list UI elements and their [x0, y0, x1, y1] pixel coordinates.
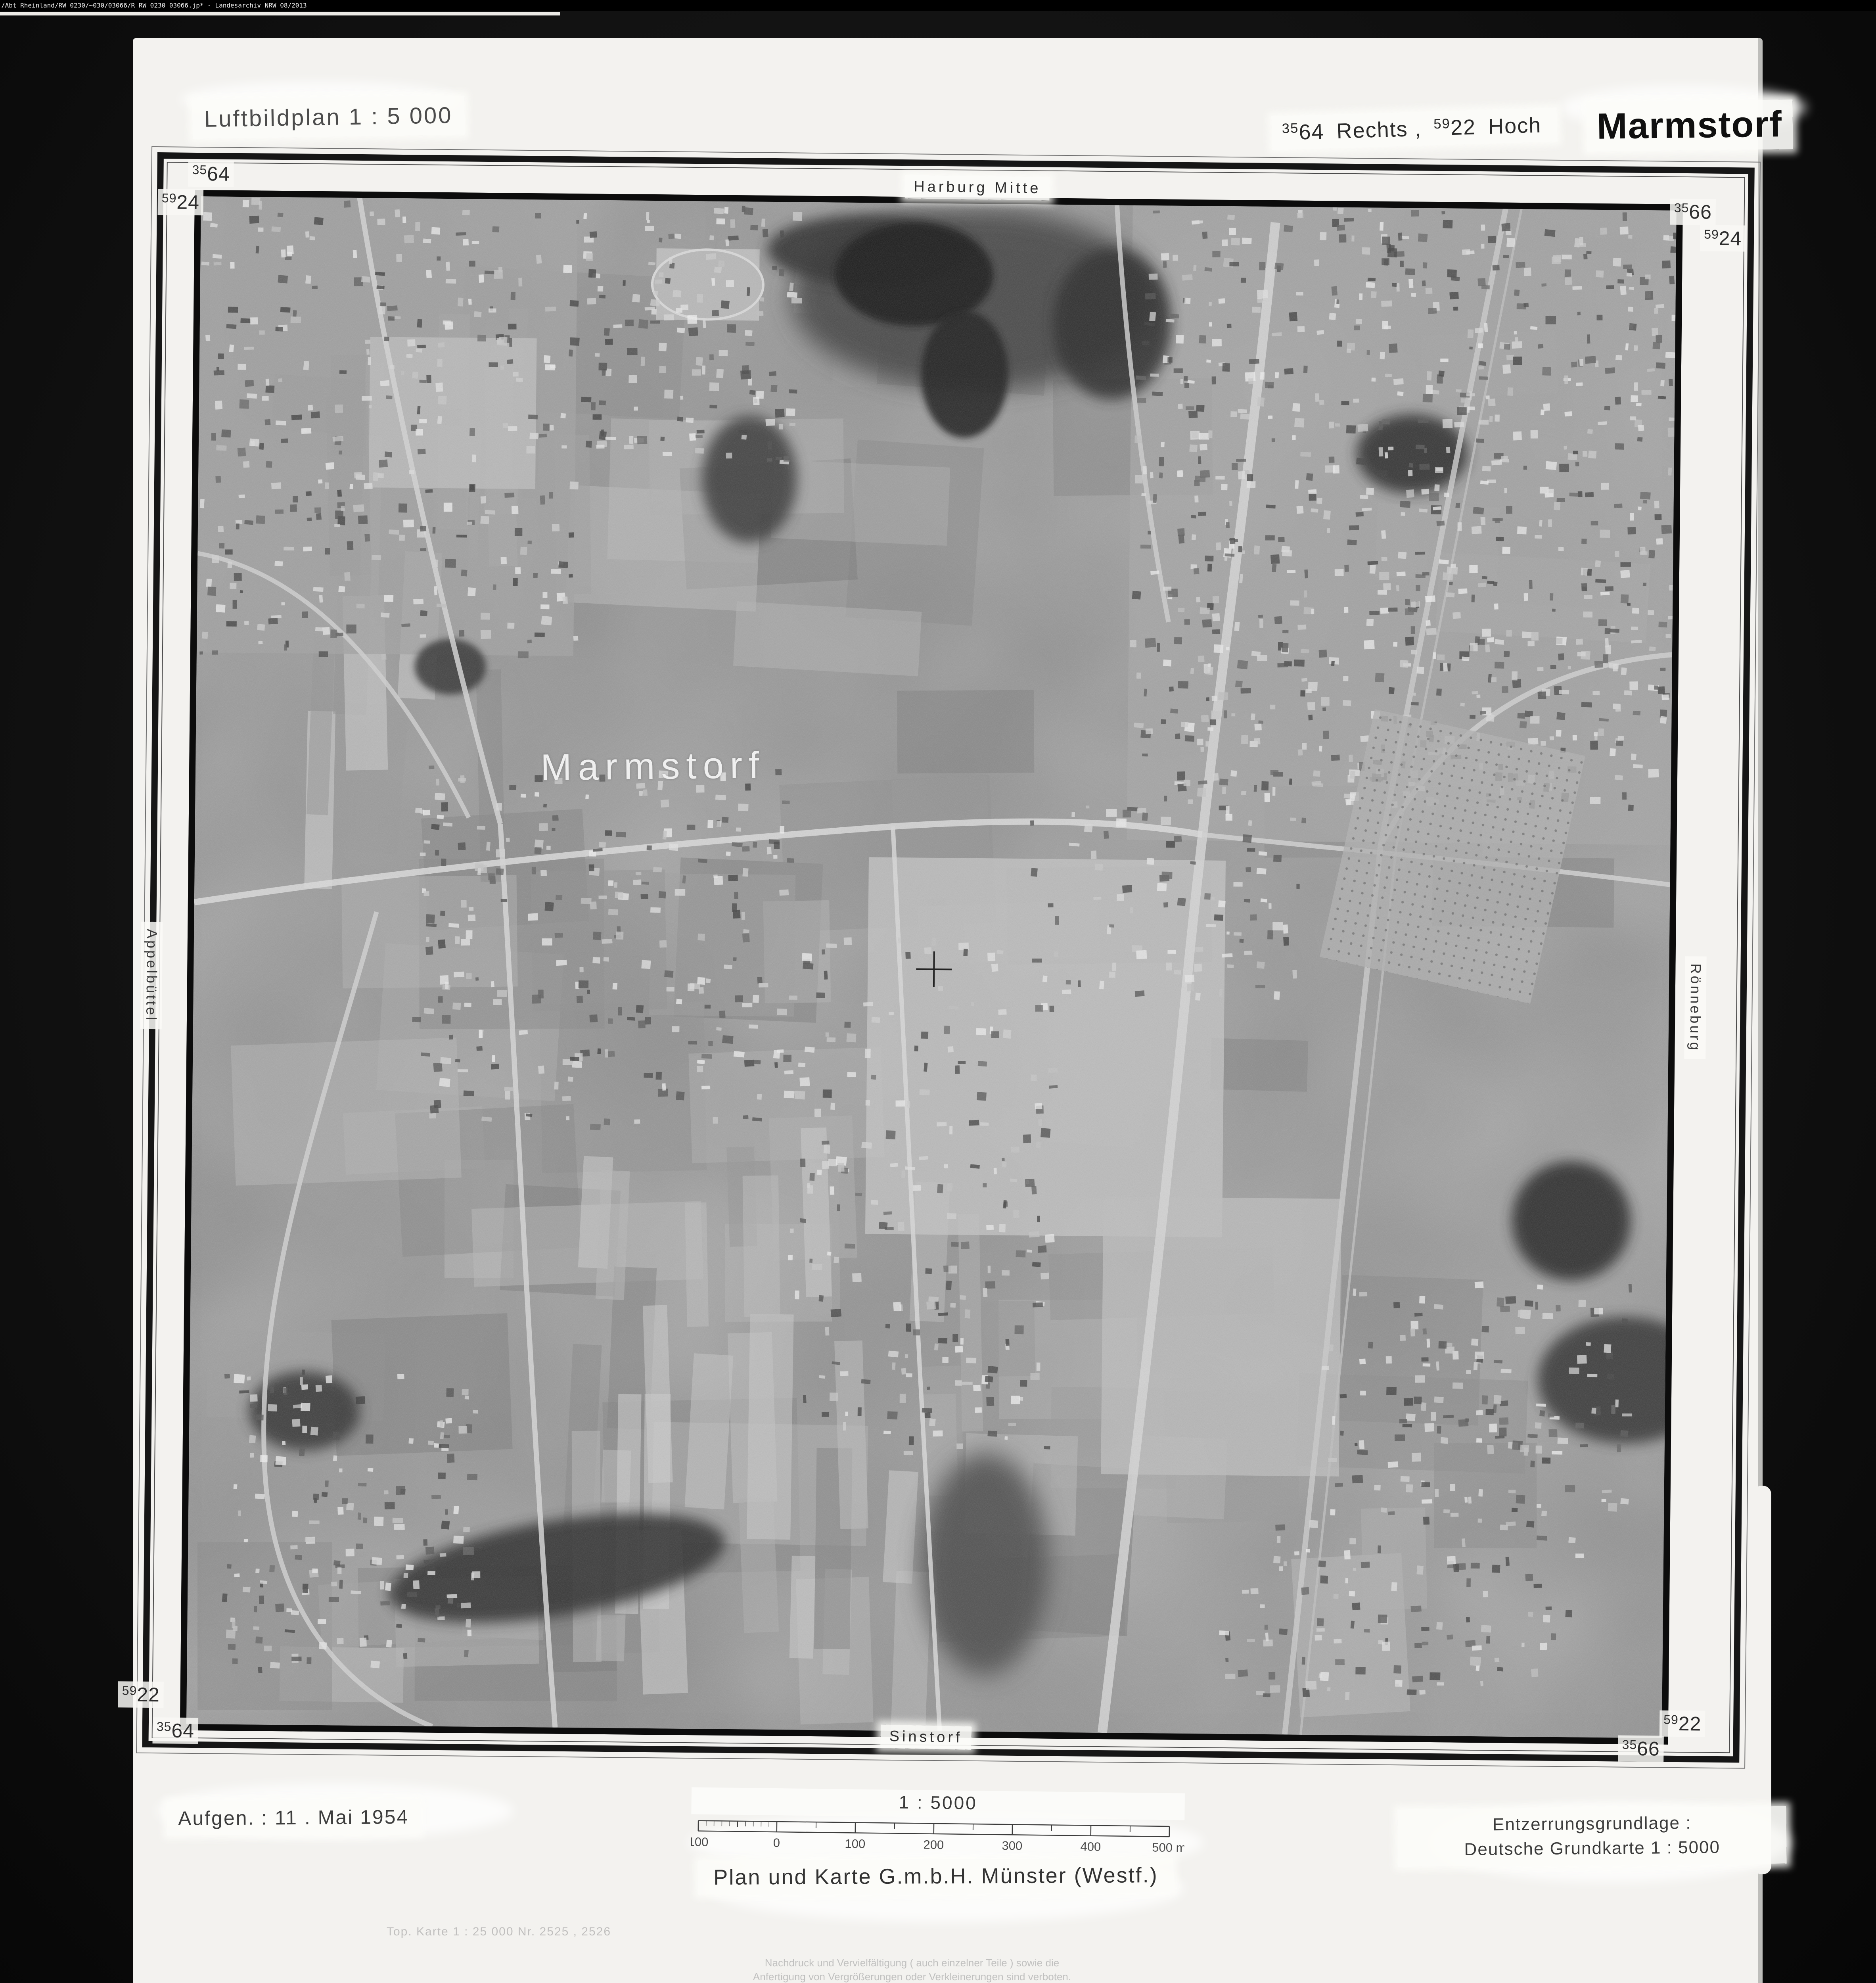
svg-text:0: 0: [773, 1836, 780, 1850]
sheet-name-title: Marmstorf: [1586, 100, 1793, 152]
grid-digit: 24: [1719, 227, 1742, 250]
svg-text:400: 400: [1080, 1839, 1101, 1854]
scale-bar-block: 1 : 5000 1000100200300400500 m: [691, 1787, 1185, 1863]
grid-digit: 24: [176, 191, 199, 213]
series-title: Luftbildplan 1 : 5 000: [192, 96, 465, 139]
photo-place-label: Marmstorf: [540, 744, 766, 789]
grid-ref-rechts-main: 64: [1299, 120, 1325, 144]
grid-digit: 22: [137, 1684, 160, 1706]
grid-number-top-left-y: 5924: [157, 189, 203, 215]
grid-ref-hoch-main: 22: [1450, 115, 1476, 140]
grid-number-bottom-right-y: 5922: [1659, 1711, 1705, 1737]
grid-digit: 22: [1678, 1713, 1701, 1735]
grid-digit: 64: [207, 163, 230, 185]
topo-map-reference: Top. Karte 1 : 25 000 Nr. 2525 , 2526: [387, 1925, 611, 1939]
archive-filename-bar: /Abt_Rheinland/RW_0230/~030/03066/R_RW_0…: [0, 0, 1876, 11]
grid-number-top-left-x: 3564: [188, 161, 234, 187]
edge-label-roenneburg: Rönneburg: [1684, 956, 1706, 1059]
svg-text:500 m: 500 m: [1152, 1841, 1184, 1855]
rectification-note: Entzerrungsgrundlage : Deutsche Grundkar…: [1397, 1806, 1786, 1867]
copyright-line2: Anfertigung von Vergrößerungen oder Verk…: [734, 1970, 1090, 1983]
scale-bar: 1000100200300400500 m: [691, 1814, 1184, 1861]
publisher-imprint: Plan und Karte G.m.b.H. Münster (Westf.): [698, 1858, 1174, 1895]
aerial-photo: Marmstorf: [180, 190, 1683, 1745]
grid-ref-rechts-word: Rechts ,: [1336, 117, 1422, 143]
grid-digit: 35: [157, 1719, 172, 1734]
svg-text:100: 100: [845, 1837, 865, 1851]
archive-bar-underline: [0, 12, 560, 15]
edge-label-appelbuettel-wrap: Appelbüttel: [144, 922, 163, 1104]
grid-digit: 35: [1674, 201, 1689, 215]
map-area: Marmstorf 3564 5924 3566 5924 5922 3564 …: [142, 152, 1754, 1762]
svg-text:300: 300: [1002, 1839, 1022, 1853]
grid-digit: 59: [1663, 1713, 1679, 1727]
svg-text:100: 100: [691, 1835, 708, 1849]
grid-digit: 66: [1689, 201, 1712, 223]
acquisition-date-note: Aufgen. : 11 . Mai 1954: [167, 1800, 420, 1835]
grid-number-top-right-y: 5924: [1700, 225, 1746, 251]
edge-label-appelbuettel: Appelbüttel: [140, 922, 163, 1030]
grid-digit: 59: [162, 191, 177, 205]
edge-label-roenneburg-wrap: Rönneburg: [1688, 956, 1707, 1139]
principal-point-crosshair: [916, 951, 952, 987]
edge-label-harburg-mitte: Harburg Mitte: [905, 175, 1050, 200]
copyright-line1: Nachdruck und Vervielfältigung ( auch ei…: [734, 1956, 1090, 1970]
rectification-line1: Entzerrungsgrundlage :: [1397, 1810, 1786, 1838]
edge-label-sinstorf: Sinstorf: [880, 1724, 972, 1750]
grid-number-bottom-right-x: 3566: [1618, 1736, 1664, 1762]
grid-number-bottom-left-y: 5922: [118, 1681, 164, 1708]
svg-text:200: 200: [923, 1838, 944, 1852]
grid-digit: 35: [192, 163, 207, 177]
map-sheet: Luftbildplan 1 : 5 000 3564 Rechts , 592…: [133, 38, 1763, 1983]
rectification-line2: Deutsche Grundkarte 1 : 5000: [1398, 1835, 1787, 1863]
grid-number-bottom-left-x: 3564: [152, 1717, 198, 1744]
grid-digit: 66: [1637, 1738, 1660, 1760]
grid-digit: 59: [122, 1683, 137, 1697]
copyright-notice: Nachdruck und Vervielfältigung ( auch ei…: [734, 1956, 1090, 1983]
grid-number-top-right-x: 3566: [1670, 199, 1716, 225]
grid-digit: 59: [1704, 227, 1719, 241]
grid-ref-hoch-word: Hoch: [1488, 113, 1542, 139]
grid-ref-rechts-sup: 35: [1282, 121, 1299, 136]
grid-digit: 35: [1622, 1738, 1637, 1752]
grid-reference: 3564 Rechts , 5922 Hoch: [1271, 107, 1558, 150]
grid-digit: 64: [171, 1720, 194, 1742]
grid-ref-hoch-sup: 59: [1433, 116, 1451, 132]
